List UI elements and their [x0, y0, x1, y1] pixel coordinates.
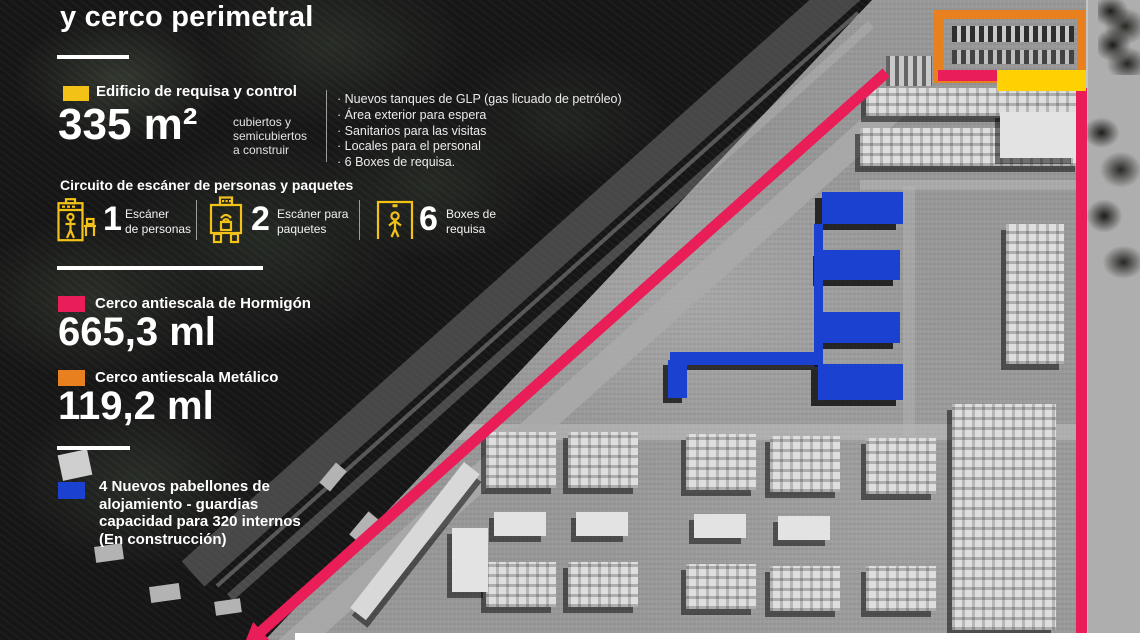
- map-pavilion-stub: [668, 360, 687, 398]
- building-block: [866, 438, 936, 494]
- feature-item: Área exterior para espera: [337, 108, 622, 124]
- building-block: [778, 516, 830, 540]
- map-pavilion-2: [820, 250, 900, 280]
- person-scanner-icon: [57, 198, 97, 242]
- building-block: [952, 404, 1056, 630]
- requisa-label: Edificio de requisa y control: [96, 83, 297, 100]
- road-strip: [903, 186, 915, 436]
- vertical-divider: [359, 200, 360, 240]
- road-strip: [1086, 0, 1140, 640]
- building-block: [486, 432, 556, 488]
- feature-item: Locales para el personal: [337, 139, 622, 155]
- package-scanner-icon: [209, 196, 243, 244]
- tree-cluster: [1098, 0, 1140, 75]
- title-underline: [57, 55, 129, 59]
- requisa-box-label: Boxes de requisa: [446, 207, 496, 236]
- package-scanner-count: 2: [251, 200, 270, 239]
- pavilions-description: 4 Nuevos pabellones de alojamiento - gua…: [99, 478, 301, 548]
- concrete-fence-value: 665,3 ml: [58, 310, 216, 355]
- person-scanner-count: 1: [103, 200, 122, 239]
- map-pavilion-3: [821, 312, 900, 343]
- map-requisa-building: [997, 70, 1086, 91]
- metal-fence-value: 119,2 ml: [58, 384, 214, 429]
- building-block: [694, 514, 746, 538]
- tree-cluster: [1085, 105, 1140, 290]
- page-title: y cerco perimetral: [60, 1, 313, 34]
- building-block: [686, 564, 756, 609]
- building-block: [770, 436, 840, 492]
- map-pavilion-spine: [814, 224, 823, 367]
- parking-cars: [952, 26, 1074, 42]
- requisa-box-icon: [376, 200, 414, 240]
- building-block: [452, 528, 488, 592]
- building-block: [568, 562, 638, 607]
- requisa-box-count: 6: [419, 200, 438, 239]
- building-block: [1000, 112, 1076, 158]
- requisa-area-note: cubiertos y semicubiertos a construir: [233, 115, 307, 157]
- person-scanner-label: Escáner de personas: [125, 207, 191, 236]
- building-block: [576, 512, 628, 536]
- building-block: [866, 566, 936, 611]
- vertical-divider: [326, 90, 327, 162]
- map-pavilion-corridor: [670, 352, 818, 365]
- building-block: [886, 56, 932, 86]
- map-concrete-fence-right: [1076, 88, 1087, 633]
- map-pavilion-1: [822, 192, 903, 224]
- feature-item: Nuevos tanques de GLP (gas licuado de pe…: [337, 92, 622, 108]
- section-divider: [57, 446, 130, 450]
- road-strip: [860, 180, 1086, 190]
- requisa-area-value: 335 m²: [58, 100, 197, 150]
- requisa-feature-list: Nuevos tanques de GLP (gas licuado de pe…: [337, 92, 622, 171]
- bottom-white-band: [295, 633, 1140, 640]
- section-divider: [57, 266, 263, 270]
- map-concrete-fence-top: [938, 70, 998, 81]
- scanner-circuit-heading: Circuito de escáner de personas y paquet…: [60, 177, 353, 193]
- prison-perimeter-infographic: y cerco perimetral Edificio de requisa y…: [0, 0, 1140, 640]
- feature-item: 6 Boxes de requisa.: [337, 155, 622, 171]
- building-block: [494, 512, 546, 536]
- building-block: [1006, 224, 1064, 364]
- pavilions-swatch: [58, 482, 85, 499]
- requisa-swatch: [63, 86, 89, 101]
- package-scanner-label: Escáner para paquetes: [277, 207, 348, 236]
- vertical-divider: [196, 200, 197, 240]
- building-block: [486, 562, 556, 607]
- building-block: [568, 432, 638, 488]
- map-pavilion-4: [818, 364, 903, 400]
- building-block: [686, 434, 756, 490]
- feature-item: Sanitarios para las visitas: [337, 124, 622, 140]
- building-block: [770, 566, 840, 611]
- parking-cars: [952, 50, 1074, 64]
